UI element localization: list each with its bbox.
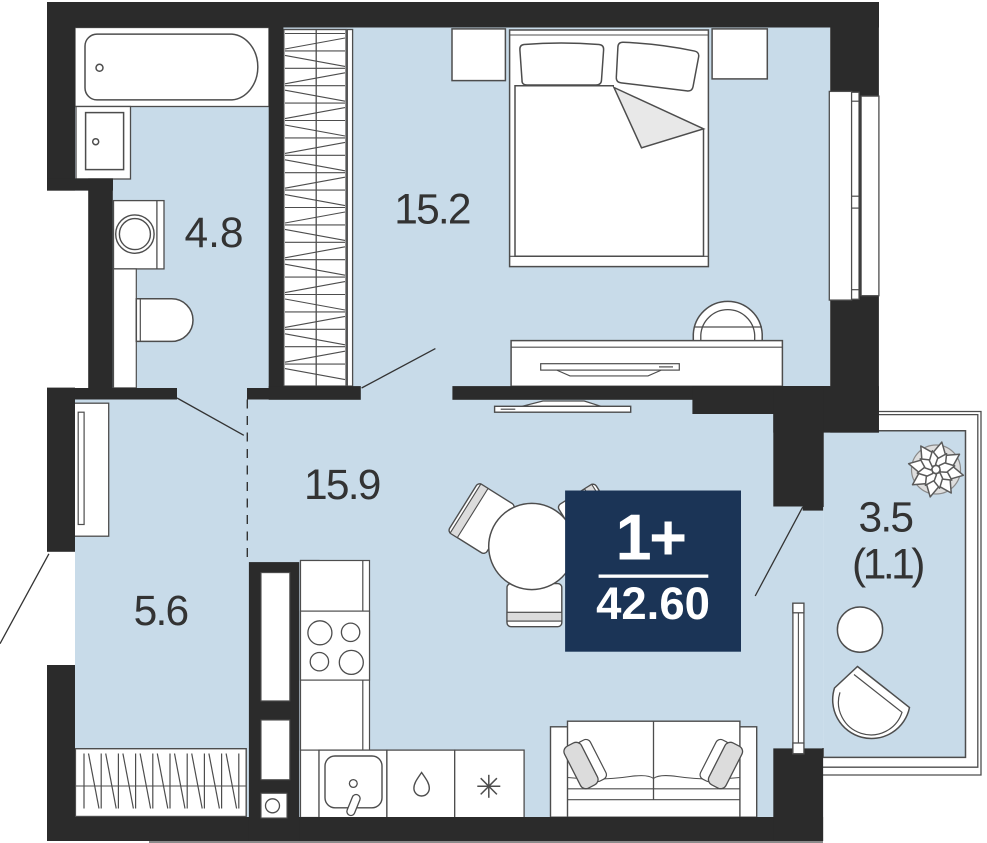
svg-text:1+: 1+	[615, 501, 685, 574]
svg-text:15.2: 15.2	[394, 187, 470, 234]
svg-text:42.60: 42.60	[596, 578, 710, 629]
svg-text:3.5: 3.5	[859, 494, 913, 541]
svg-text:15.9: 15.9	[304, 462, 380, 509]
svg-text:5.6: 5.6	[134, 588, 188, 635]
svg-text:4.8: 4.8	[184, 210, 243, 257]
svg-text:(1.1): (1.1)	[852, 542, 923, 589]
